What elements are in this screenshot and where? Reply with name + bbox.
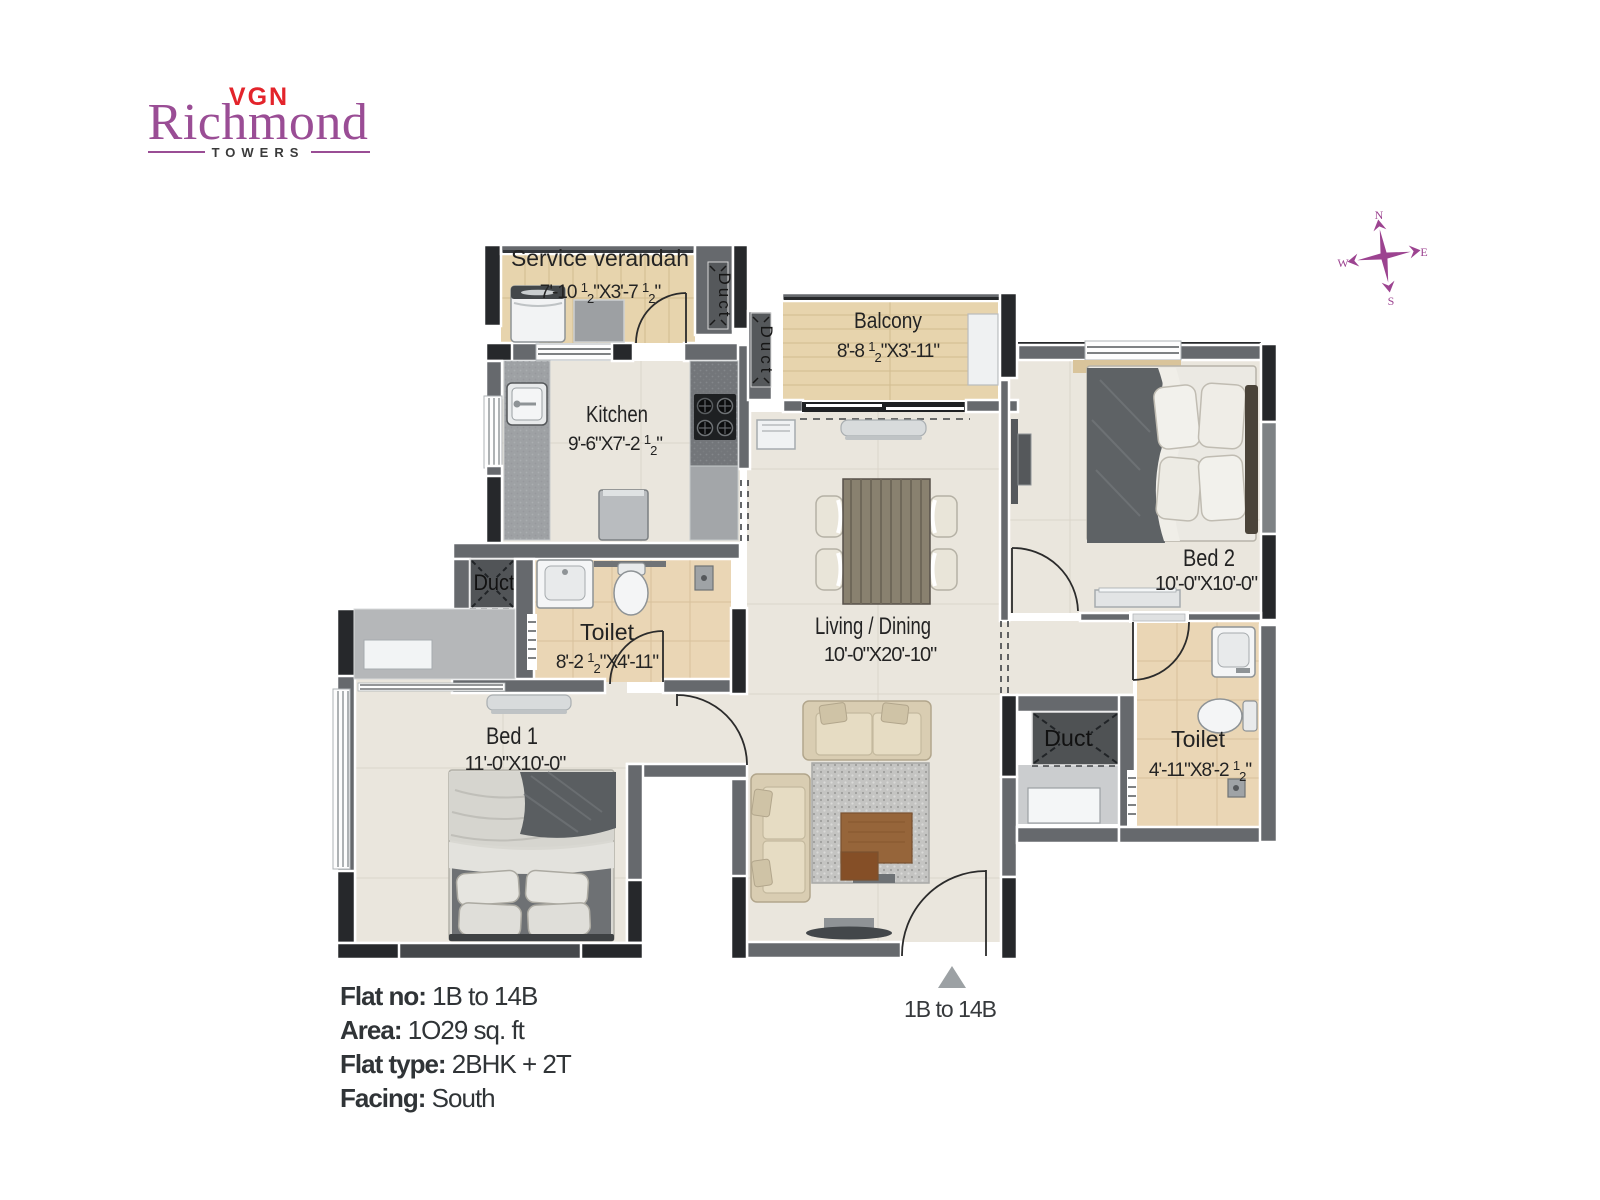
svg-text:Toilet: Toilet bbox=[580, 619, 635, 645]
svg-text:Balcony: Balcony bbox=[854, 308, 922, 333]
svg-text:N: N bbox=[1375, 208, 1384, 222]
svg-text:Duct: Duct bbox=[757, 326, 776, 377]
svg-text:TOWERS: TOWERS bbox=[212, 145, 305, 160]
svg-text:Living / Dining: Living / Dining bbox=[815, 613, 931, 640]
svg-text:Flat type: 2BHK + 2T: Flat type: 2BHK + 2T bbox=[340, 1049, 572, 1079]
svg-text:Bed 1: Bed 1 bbox=[486, 723, 538, 750]
svg-text:Duct: Duct bbox=[474, 570, 515, 595]
svg-text:8'-2 12"X4'-11": 8'-2 12"X4'-11" bbox=[556, 650, 659, 676]
svg-text:Service verandah: Service verandah bbox=[511, 245, 689, 271]
svg-text:10'-0"X10'-0": 10'-0"X10'-0" bbox=[1155, 573, 1258, 595]
svg-text:Bed 2: Bed 2 bbox=[1183, 545, 1235, 572]
svg-text:Kitchen: Kitchen bbox=[586, 401, 648, 427]
svg-text:Richmond: Richmond bbox=[148, 94, 369, 151]
svg-text:1B to 14B: 1B to 14B bbox=[904, 996, 997, 1022]
svg-text:E: E bbox=[1420, 245, 1427, 259]
svg-text:11'-0"X10'-0": 11'-0"X10'-0" bbox=[465, 753, 567, 775]
svg-text:Flat no: 1B to 14B: Flat no: 1B to 14B bbox=[340, 981, 537, 1011]
svg-text:Area: 1O29 sq. ft: Area: 1O29 sq. ft bbox=[340, 1015, 526, 1045]
svg-text:Duct: Duct bbox=[1044, 725, 1093, 751]
svg-text:Toilet: Toilet bbox=[1171, 726, 1226, 752]
svg-text:Facing: South: Facing: South bbox=[340, 1083, 495, 1113]
svg-text:8'-8 12"X3'-11": 8'-8 12"X3'-11" bbox=[837, 339, 940, 365]
svg-text:W: W bbox=[1337, 256, 1349, 270]
svg-text:10'-0"X20'-10": 10'-0"X20'-10" bbox=[824, 644, 937, 666]
svg-text:Duct: Duct bbox=[715, 273, 734, 320]
svg-text:S: S bbox=[1388, 294, 1395, 308]
